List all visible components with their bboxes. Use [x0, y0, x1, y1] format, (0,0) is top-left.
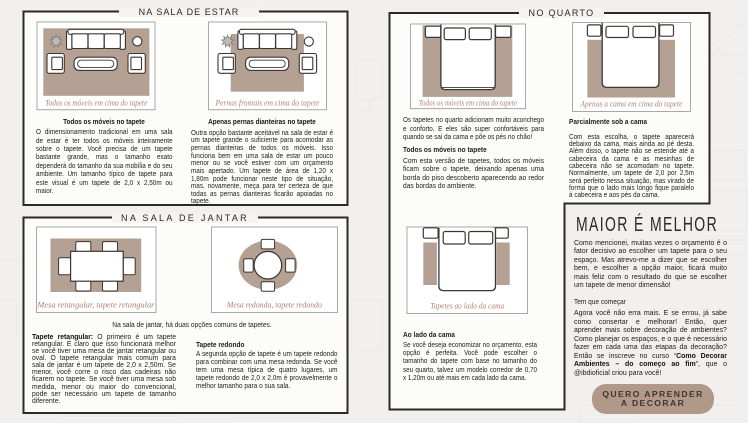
- svg-text:Mesa retangular, tapete retang: Mesa retangular, tapete retangular: [36, 301, 155, 310]
- svg-text:Tapetes ao lado da cama: Tapetes ao lado da cama: [430, 302, 504, 311]
- svg-text:Todos os móveis em cima do tap: Todos os móveis em cima do tapete: [45, 99, 147, 108]
- svg-text:Mesa redonda, tapete redondo: Mesa redonda, tapete redondo: [226, 301, 322, 310]
- svg-text:Apenas a cama em cima do tapet: Apenas a cama em cima do tapete: [579, 99, 682, 108]
- svg-text:Todos os móveis em cima do tap: Todos os móveis em cima do tapete: [419, 98, 517, 107]
- svg-text:Pernas frontais em cima do tap: Pernas frontais em cima do tapete: [215, 99, 320, 108]
